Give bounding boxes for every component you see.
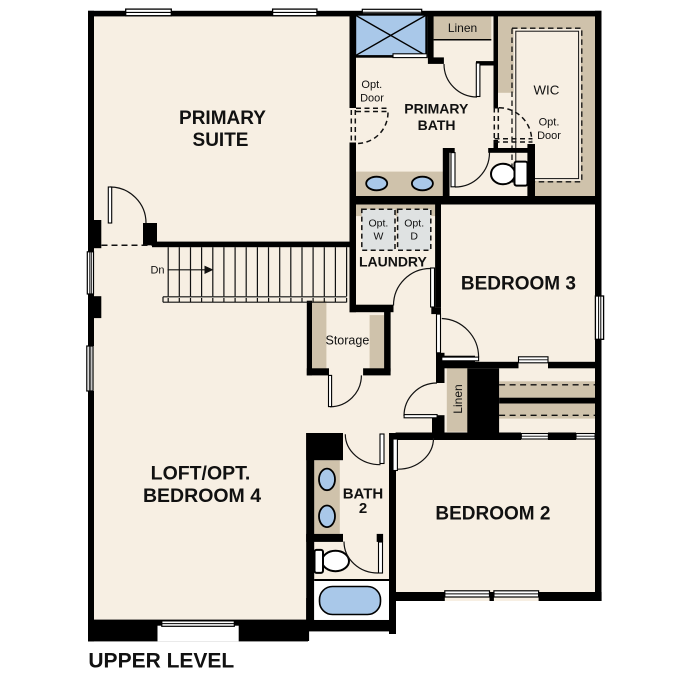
svg-text:Door: Door bbox=[360, 93, 384, 105]
svg-text:Opt.: Opt. bbox=[368, 217, 388, 229]
svg-text:Opt.: Opt. bbox=[539, 116, 560, 128]
svg-text:2: 2 bbox=[359, 500, 367, 517]
svg-text:BEDROOM 3: BEDROOM 3 bbox=[461, 273, 576, 294]
svg-text:BATH: BATH bbox=[418, 117, 456, 133]
svg-text:D: D bbox=[410, 231, 418, 243]
svg-text:LAUNDRY: LAUNDRY bbox=[359, 254, 428, 270]
svg-text:Door: Door bbox=[537, 130, 561, 142]
svg-text:WIC: WIC bbox=[533, 82, 559, 97]
svg-text:LOFT/OPT.: LOFT/OPT. bbox=[151, 462, 251, 484]
svg-text:Opt.: Opt. bbox=[404, 217, 424, 229]
svg-text:UPPER LEVEL: UPPER LEVEL bbox=[88, 650, 234, 673]
svg-text:PRIMARY: PRIMARY bbox=[179, 108, 266, 129]
svg-text:BEDROOM 4: BEDROOM 4 bbox=[143, 485, 261, 507]
svg-text:Linen: Linen bbox=[451, 384, 465, 413]
svg-text:PRIMARY: PRIMARY bbox=[404, 100, 469, 116]
svg-text:Storage: Storage bbox=[326, 333, 370, 347]
svg-text:Opt.: Opt. bbox=[361, 79, 382, 91]
svg-text:Dn: Dn bbox=[150, 265, 164, 277]
svg-text:W: W bbox=[373, 231, 383, 243]
svg-text:BEDROOM 2: BEDROOM 2 bbox=[435, 504, 550, 525]
svg-text:Linen: Linen bbox=[448, 21, 477, 35]
svg-text:SUITE: SUITE bbox=[193, 130, 249, 151]
